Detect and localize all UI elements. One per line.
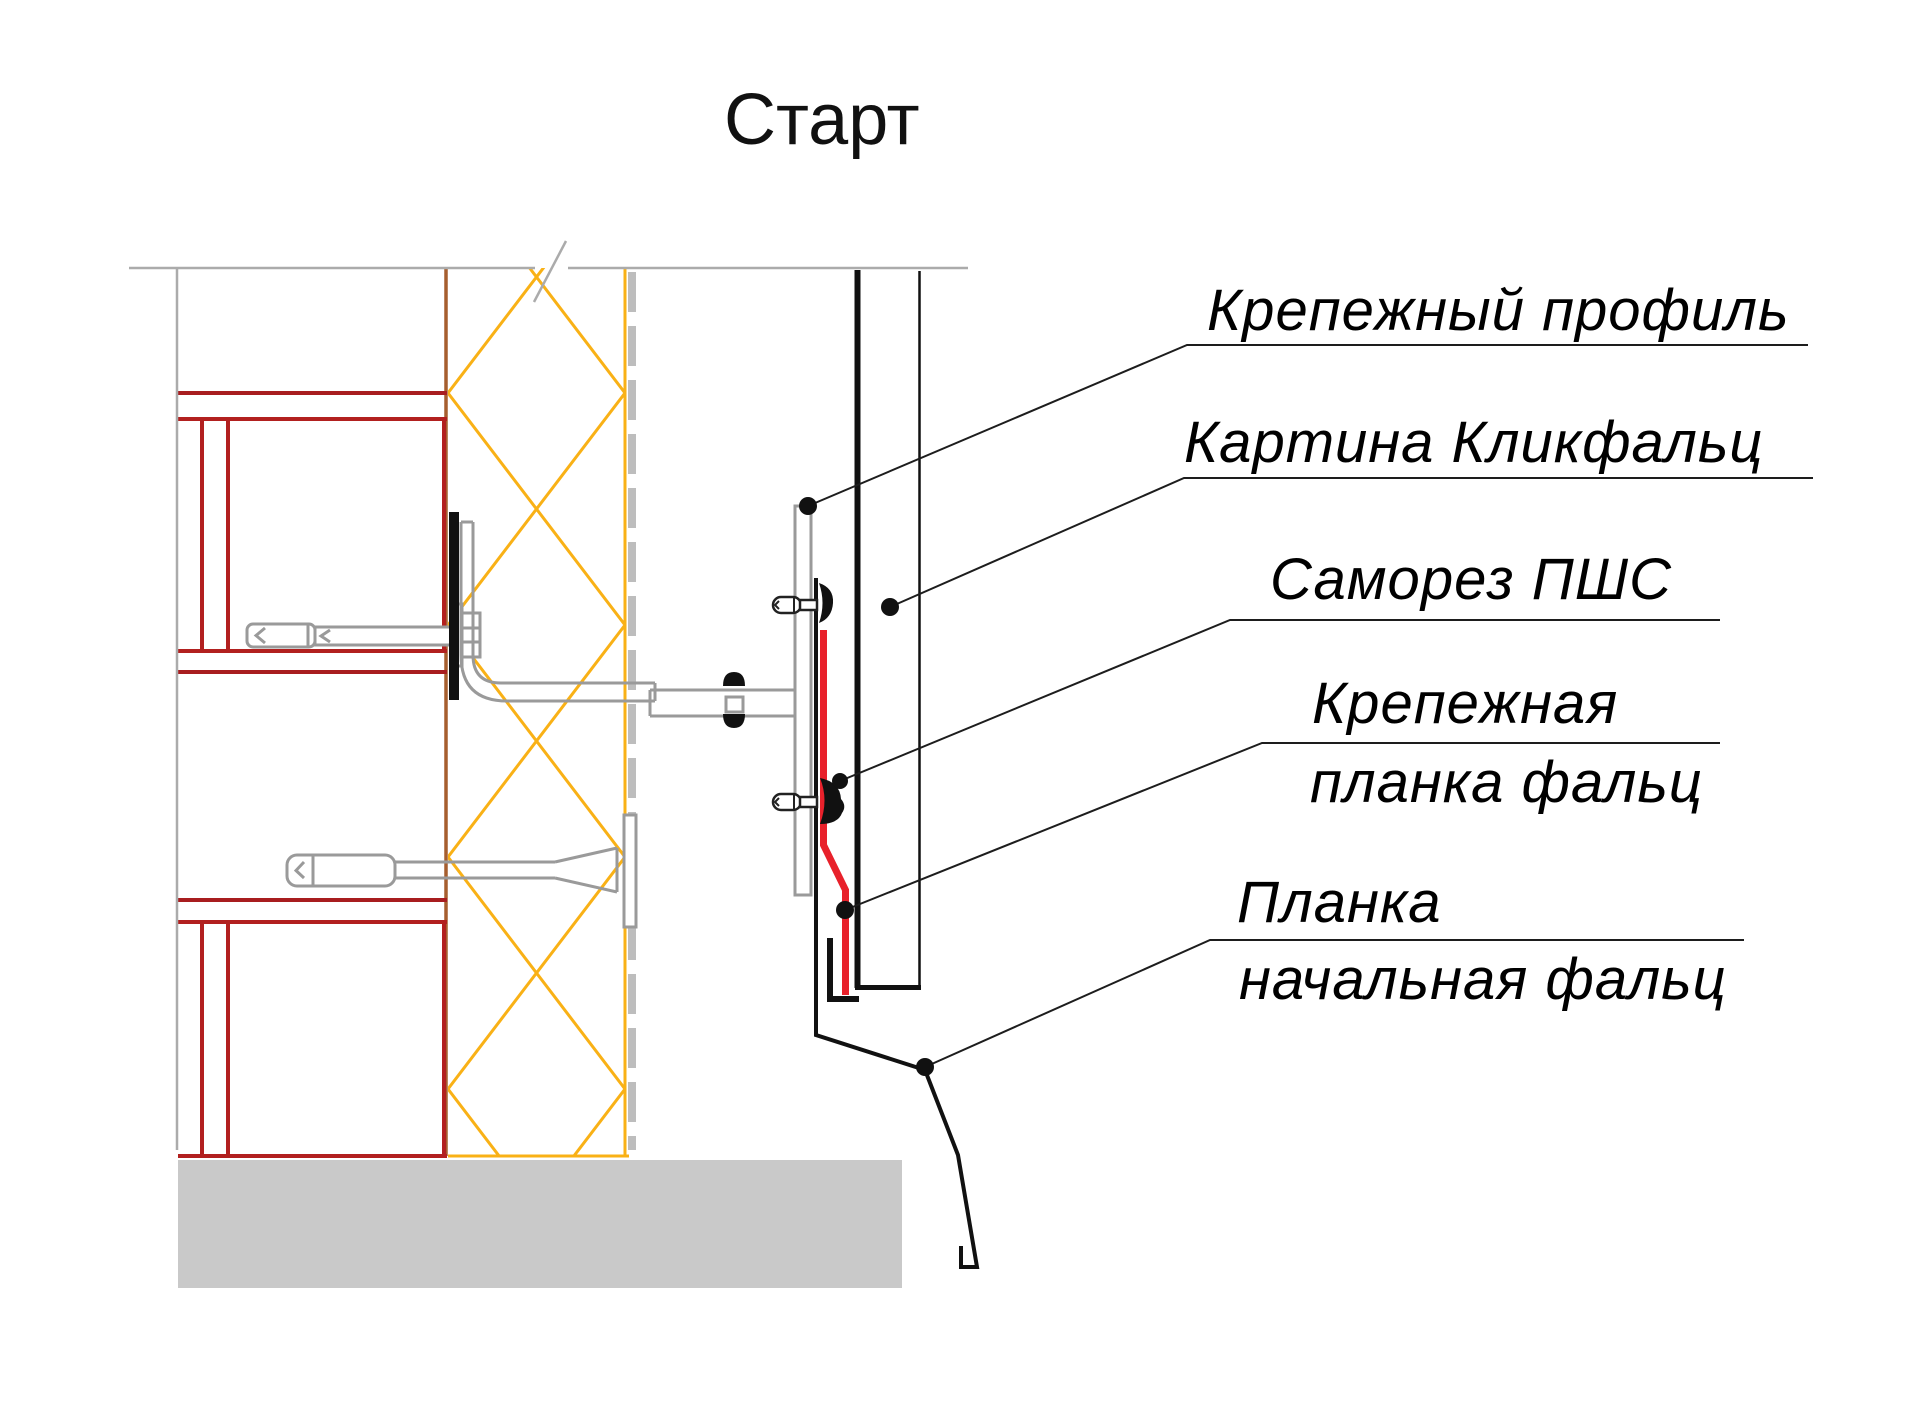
label-starting-strip-line1: Планка: [1237, 874, 1442, 932]
fastening-profile: [795, 506, 811, 895]
drawing-canvas: Старт Крепежный профиль Картина Кликфаль…: [0, 0, 1920, 1403]
concrete-base: [178, 1160, 902, 1288]
label-fastening-strip-line1: Крепежная: [1312, 675, 1618, 733]
label-fastening-strip-line2: планка фальц: [1310, 754, 1703, 812]
label-klickfalz-panel: Картина Кликфальц: [1184, 414, 1764, 472]
insulation-layer: [448, 268, 629, 1156]
label-starting-strip-line2: начальная фальц: [1239, 951, 1727, 1009]
label-fastening-profile: Крепежный профиль: [1207, 282, 1789, 340]
page-title: Старт: [724, 84, 920, 156]
label-screw-pshs: Саморез ПШС: [1270, 551, 1672, 609]
backing-strip: [449, 512, 459, 700]
section-drawing: [0, 0, 1920, 1403]
wall-framing-red: [178, 393, 447, 1156]
